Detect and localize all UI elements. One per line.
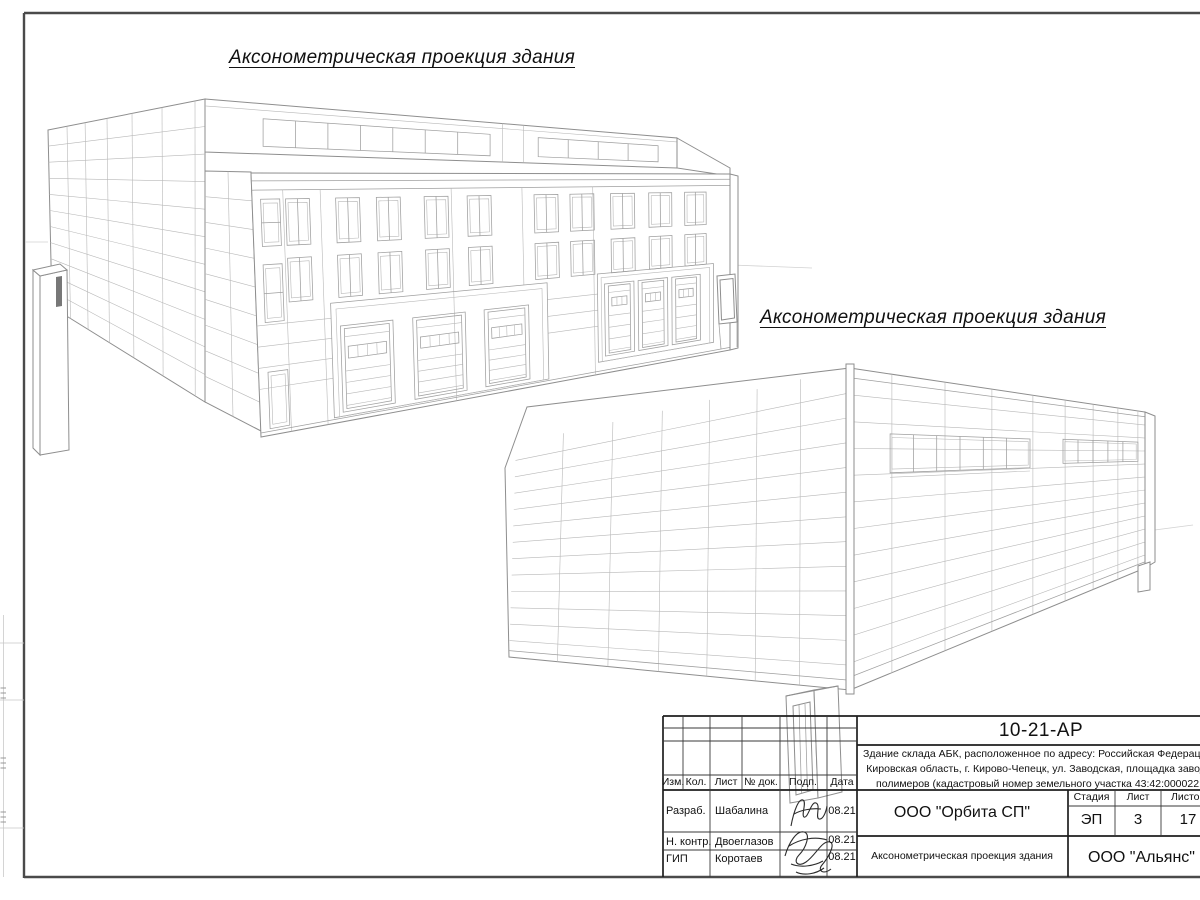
stamp-description-line1: Здание склада АБК, расположенное по адре…	[859, 747, 1200, 762]
stamp-description-line3: полимеров (кадастровый номер земельного …	[859, 777, 1200, 792]
stamp-sheets-value: 17	[1161, 812, 1200, 829]
drawing-sheet: Аксонометрическая проекция здания Аксоно…	[0, 0, 1200, 900]
stamp-stage-label: Стадия	[1068, 792, 1115, 804]
view-title-side: Аксонометрическая проекция здания	[733, 308, 1133, 329]
sheet-margin-marks	[0, 615, 24, 877]
stamp-row1-date: 08.21	[822, 805, 862, 817]
stamp-org: ООО "Орбита СП"	[862, 804, 1062, 822]
stamp-row3-name: Коротаев	[715, 853, 763, 865]
stamp-row3-date: 08.21	[822, 851, 862, 863]
stamp-row1-name: Шабалина	[715, 805, 768, 817]
stamp-row2-role: Н. контр.	[666, 836, 711, 848]
stamp-col-data: Дата	[822, 777, 862, 789]
stamp-sheet-value: 3	[1115, 812, 1161, 829]
stamp-row3-role: ГИП	[666, 853, 688, 865]
stamp-row1-role: Разраб.	[666, 805, 706, 817]
stamp-description-line2: Кировская область, г. Кирово-Чепецк, ул.…	[859, 762, 1200, 777]
view-title-top: Аксонометрическая проекция здания	[202, 48, 602, 69]
stamp-org2: ООО "Альянс"	[1068, 849, 1200, 867]
stamp-drawing-name: Аксонометрическая проекция здания	[862, 851, 1062, 863]
stamp-row2-name: Двоеглазов	[715, 836, 773, 848]
stamp-row2-date: 08.21	[822, 834, 862, 846]
stamp-sheets-label: Листов	[1161, 792, 1200, 804]
stamp-col-podp: Подп.	[778, 777, 828, 789]
stamp-sheet-label: Лист	[1115, 792, 1161, 804]
stamp-doc-number: 10-21-АР	[857, 721, 1200, 742]
stamp-stage-value: ЭП	[1068, 812, 1115, 829]
